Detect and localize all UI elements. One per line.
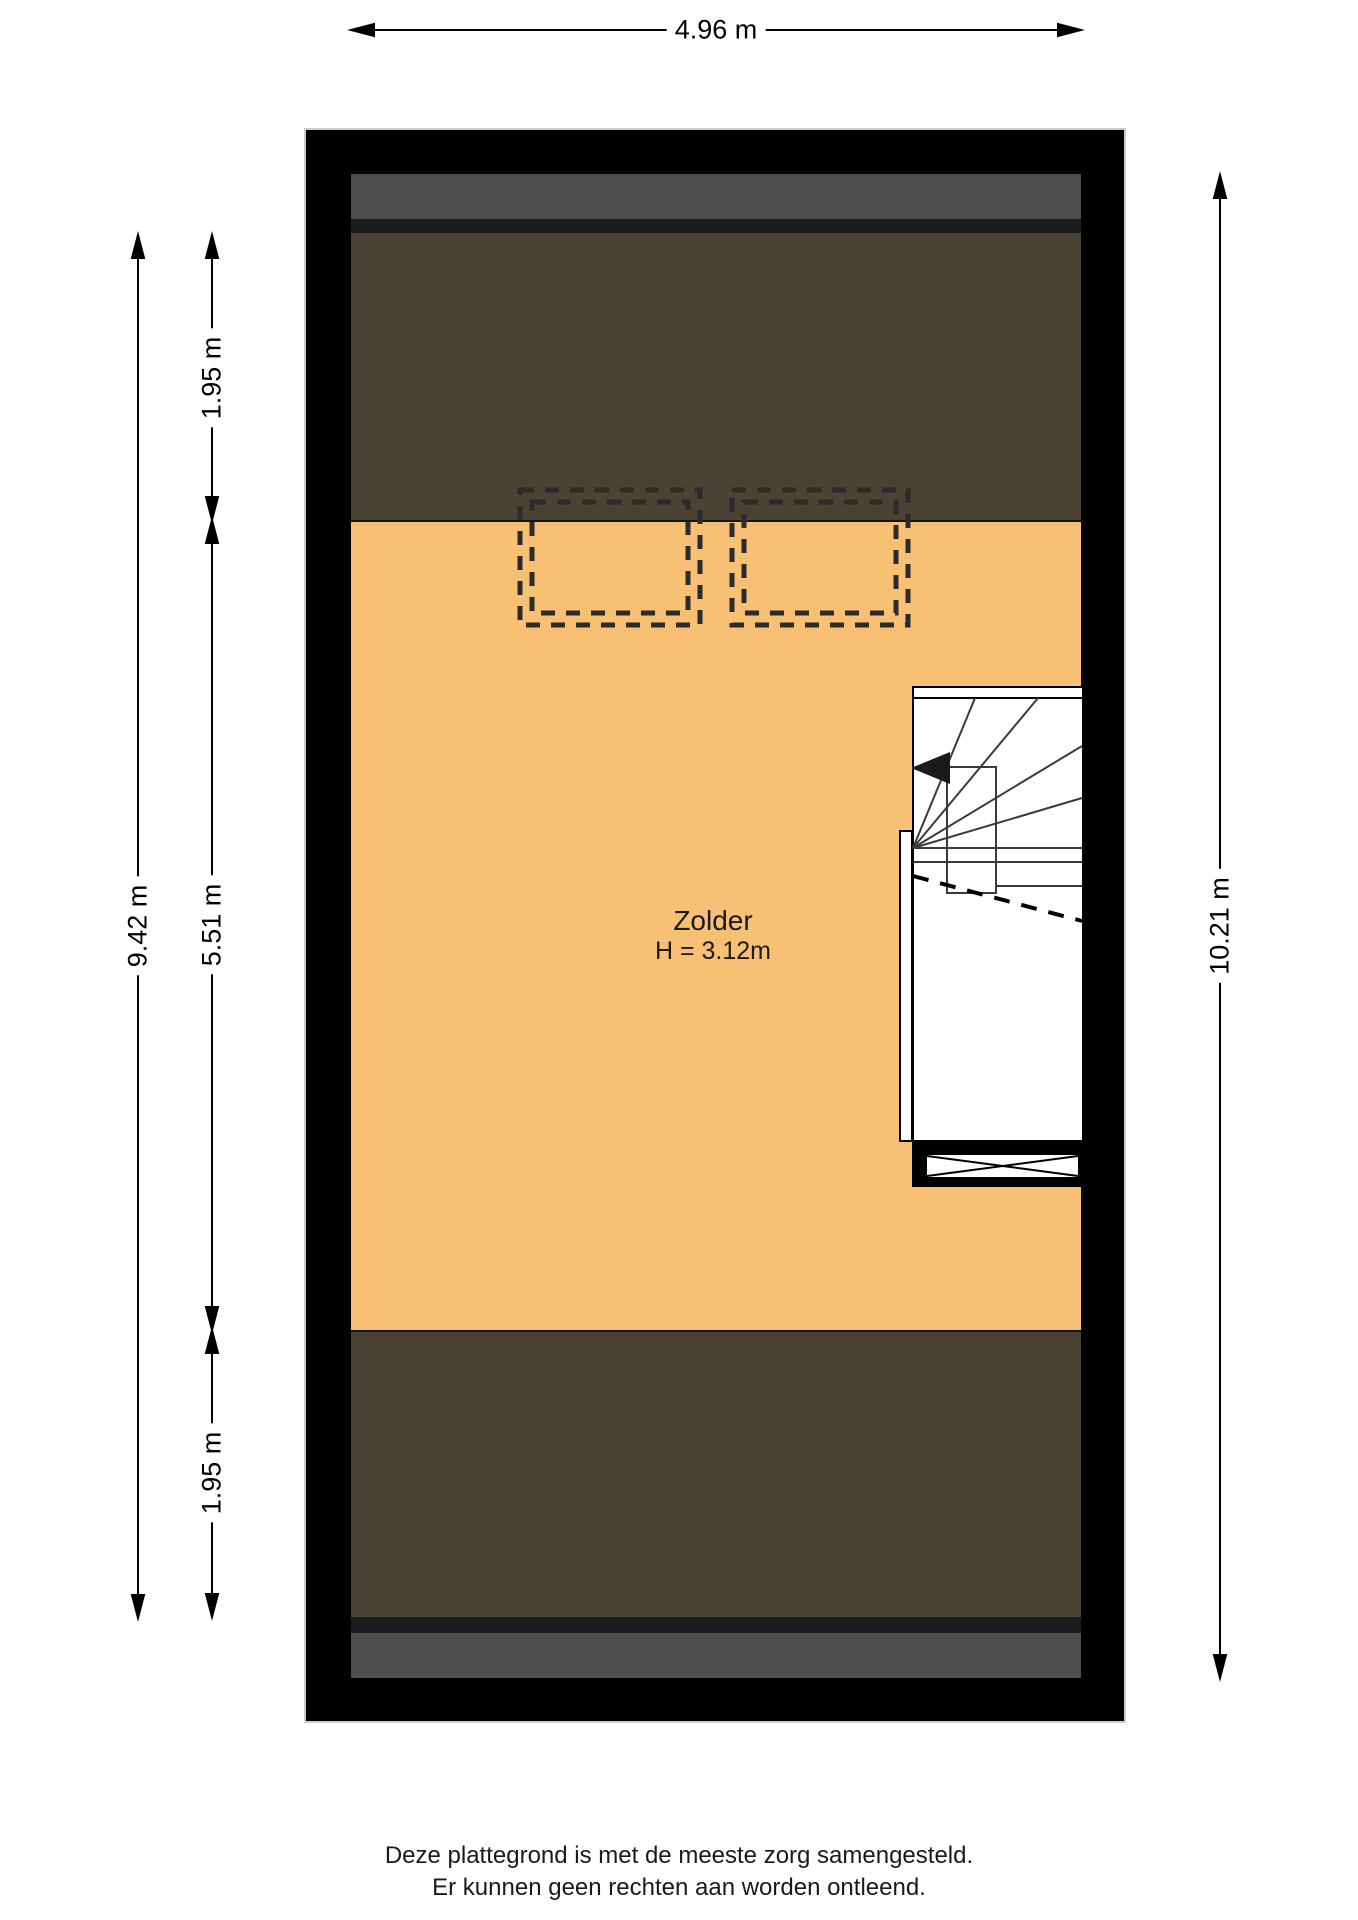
- dimension-label-top-width: 4.96 m: [667, 13, 766, 48]
- room-ceiling-height: H = 3.12m: [563, 937, 863, 965]
- dimension-arrowhead: [1058, 24, 1081, 36]
- floorplan-page: 4.96 m 9.42 m 1.95 m 5.51 m 1.95 m 10.21…: [0, 0, 1358, 1920]
- dimension-arrowhead: [351, 24, 374, 36]
- dimension-arrowhead: [206, 1307, 218, 1330]
- dimension-arrowhead: [1214, 175, 1226, 198]
- room-name: Zolder: [563, 905, 863, 937]
- footer-disclaimer: Deze plattegrond is met de meeste zorg s…: [0, 1840, 1358, 1904]
- roof-slope-area-bottom: [351, 1330, 1081, 1617]
- dimension-arrowhead: [1214, 1655, 1226, 1678]
- roof-dark-strip-bottom: [351, 1617, 1081, 1633]
- footer-disclaimer-line2: Er kunnen geen rechten aan worden ontlee…: [0, 1872, 1358, 1904]
- roof-edge-band-top: [351, 174, 1081, 219]
- dimension-arrowhead: [132, 235, 144, 258]
- stairwell-side-wall: [899, 830, 913, 1142]
- room-label: Zolder H = 3.12m: [563, 905, 863, 965]
- dimension-label-left-total: 9.42 m: [121, 877, 156, 976]
- dimension-label-right-total: 10.21 m: [1203, 869, 1238, 983]
- roof-dark-strip-top: [351, 219, 1081, 233]
- staircase-enclosure: [912, 686, 1082, 1140]
- dimension-arrowhead: [206, 520, 218, 543]
- dimension-label-left-top-segment: 1.95 m: [195, 329, 230, 428]
- dimension-arrowhead: [206, 1330, 218, 1353]
- dimension-arrowhead: [206, 1594, 218, 1617]
- stair-balustrade: [925, 1153, 1080, 1179]
- dimension-label-left-middle-segment: 5.51 m: [195, 876, 230, 975]
- dimension-arrowhead: [132, 1595, 144, 1618]
- roof-slope-area-top: [351, 233, 1081, 522]
- dimension-arrowhead: [206, 235, 218, 258]
- dimension-label-left-bottom-segment: 1.95 m: [195, 1424, 230, 1523]
- roof-edge-band-bottom: [351, 1633, 1081, 1678]
- dimension-arrowhead: [206, 497, 218, 520]
- footer-disclaimer-line1: Deze plattegrond is met de meeste zorg s…: [0, 1840, 1358, 1872]
